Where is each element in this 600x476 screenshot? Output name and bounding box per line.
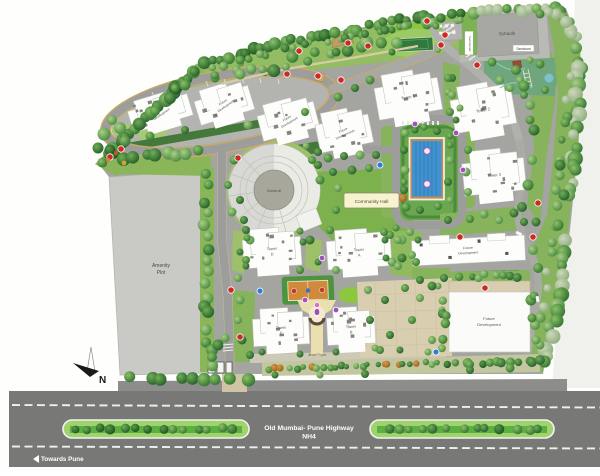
svg-text:Samskara: Samskara — [516, 47, 531, 51]
svg-text:NH4: NH4 — [302, 434, 316, 441]
svg-text:Future: Future — [483, 316, 495, 321]
svg-text:Tower: Tower — [346, 325, 357, 330]
svg-text:D: D — [271, 252, 274, 256]
svg-text:Schools: Schools — [499, 31, 516, 37]
svg-text:Jewel Foyer: Jewel Foyer — [308, 353, 327, 357]
svg-text:N: N — [99, 375, 106, 386]
svg-text:Future: Future — [463, 246, 473, 251]
svg-text:Plot: Plot — [157, 270, 166, 276]
svg-text:Samskaram: Samskaram — [468, 36, 472, 53]
svg-text:Tower: Tower — [276, 326, 287, 331]
svg-text:Towards Pune: Towards Pune — [41, 456, 84, 463]
svg-text:C: C — [280, 331, 283, 335]
svg-text:Tower: Tower — [267, 247, 278, 252]
svg-text:Old Mumbai- Pune Highway: Old Mumbai- Pune Highway — [264, 425, 354, 432]
svg-text:Community Hall: Community Hall — [355, 199, 389, 205]
svg-text:Tower: Tower — [354, 248, 365, 253]
svg-text:Amenity: Amenity — [152, 263, 171, 269]
svg-text:Samskruti: Samskruti — [267, 189, 281, 193]
svg-text:Development: Development — [477, 322, 501, 327]
